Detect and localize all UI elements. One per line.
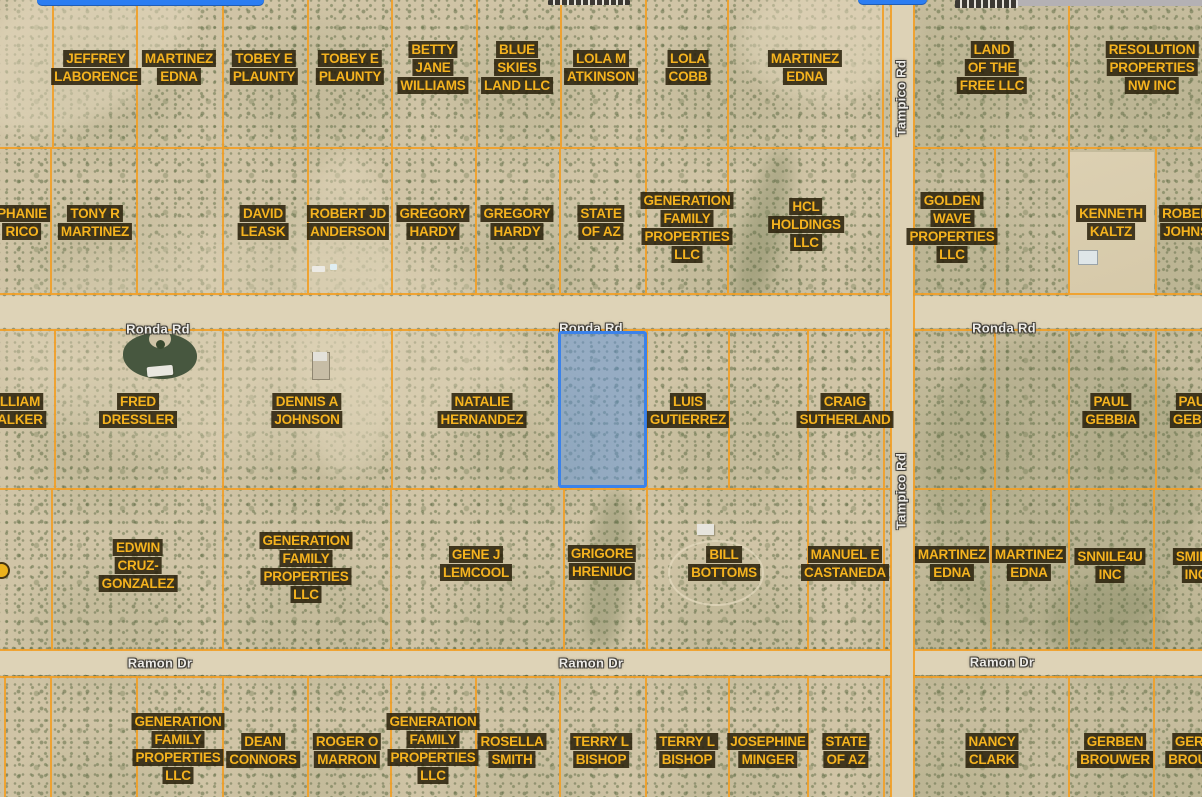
parcel-boundary-line xyxy=(0,649,890,651)
parcel-boundary-line xyxy=(913,0,915,797)
parcel-label-generation-family-properties-llc-d[interactable]: GENERATIONFAMILYPROPERTIESLLC xyxy=(259,531,352,603)
parcel-boundary-line xyxy=(391,0,393,147)
parcel-label-line: JEFFREY xyxy=(63,50,128,67)
parcel-label-line: EDWIN xyxy=(113,539,163,556)
parcel-label-line: JANE xyxy=(412,59,453,76)
parcel-label-line: KALTZ xyxy=(1087,223,1135,240)
parcel-label-robert-jd-anderson[interactable]: ROBERT JDANDERSON xyxy=(307,204,389,240)
parcel-label-line: FRED xyxy=(117,393,159,410)
parcel-label-william-walker-fragment[interactable]: LLIAMALKER xyxy=(0,392,46,428)
parcel-label-line: DEAN xyxy=(241,733,284,750)
parcel-label-line: KENNETH xyxy=(1076,205,1146,222)
parcel-label-line: MARTINEZ xyxy=(142,50,216,67)
parcel-label-line: PROPERTIES xyxy=(641,228,732,245)
parcel-label-line: LAND xyxy=(971,41,1014,58)
parcel-label-dean-connors[interactable]: DEANCONNORS xyxy=(226,732,300,768)
parcel-boundary-line xyxy=(914,147,1202,149)
parcel-label-line: GEBBIA xyxy=(1082,411,1139,428)
parcel-label-line: TOBEY E xyxy=(232,50,295,67)
parcel-label-line: GENERATION xyxy=(131,713,224,730)
parcel-boundary-line xyxy=(914,293,1202,295)
road-label: Tampico Rd xyxy=(894,453,909,529)
parcel-label-paul-gebbia[interactable]: PAULGEBBIA xyxy=(1082,392,1139,428)
parcel-label-line: PROPERTIES xyxy=(1106,59,1197,76)
parcel-label-generation-family-properties-llc-e2[interactable]: GENERATIONFAMILYPROPERTIESLLC xyxy=(386,712,479,784)
parcel-label-line: JOSEPHINE xyxy=(727,733,808,750)
parcel-boundary-line xyxy=(1068,676,1070,797)
parcel-label-line: TONY R xyxy=(67,205,122,222)
parcel-label-rosella-smith[interactable]: ROSELLASMITH xyxy=(477,732,546,768)
parcel-label-gerben-brouwer-fragment[interactable]: GERBBROUW xyxy=(1165,732,1202,768)
parcel-boundary-line xyxy=(0,147,890,149)
parcel-boundary-line xyxy=(475,147,477,293)
parcel-boundary-line xyxy=(136,147,138,293)
parcel-boundary-line xyxy=(4,676,6,797)
parcel-label-line: LEASK xyxy=(238,223,289,240)
parcel-label-line: HCL xyxy=(789,198,822,215)
parcel-boundary-line xyxy=(883,676,885,797)
parcel-label-line: MINGER xyxy=(739,751,798,768)
vehicle-anderson-2 xyxy=(330,264,337,270)
parcel-boundary-line xyxy=(914,676,1202,678)
parcel-label-generation-family-properties-llc-b[interactable]: GENERATIONFAMILYPROPERTIESLLC xyxy=(640,191,733,263)
parcel-label-line: MANUEL E xyxy=(808,546,883,563)
parcel-label-smile-inc-fragment[interactable]: SMILEINC xyxy=(1173,547,1202,583)
parcel-boundary-line xyxy=(222,0,224,147)
parcel-label-line: NANCY xyxy=(965,733,1018,750)
road-label: Tampico Rd xyxy=(894,60,909,136)
parcel-boundary-line xyxy=(0,488,890,490)
parcel-boundary-line xyxy=(50,676,52,797)
parcel-label-line: RESOLUTION xyxy=(1106,41,1199,58)
clipped-road-label-1 xyxy=(548,0,630,5)
parcel-label-line: FREE LLC xyxy=(957,77,1027,94)
parcel-label-line: GUTIERREZ xyxy=(647,411,729,428)
parcel-label-line: INC xyxy=(1182,566,1202,583)
parcel-label-line: DAVID xyxy=(240,205,286,222)
parcel-label-line: PAU xyxy=(1176,393,1202,410)
parcel-label-line: TERRY L xyxy=(656,733,718,750)
parcel-label-line: BLUE xyxy=(496,41,538,58)
parcel-boundary-line xyxy=(307,0,309,147)
parcel-label-line: CONNORS xyxy=(226,751,300,768)
parcel-label-tony-r-martinez[interactable]: TONY RMARTINEZ xyxy=(58,204,132,240)
parcel-label-line: CRAIG xyxy=(821,393,870,410)
structure-roof-dennis-johnson xyxy=(313,352,327,361)
parcel-label-terry-l-bishop-1[interactable]: TERRY LBISHOP xyxy=(570,732,632,768)
road-label: Ronda Rd xyxy=(972,321,1036,336)
parcel-label-line: PROPERTIES xyxy=(387,749,478,766)
parcel-boundary-line xyxy=(994,329,996,488)
parcel-label-golden-wave-properties-llc[interactable]: GOLDENWAVEPROPERTIESLLC xyxy=(906,191,997,263)
parcel-label-line: FAMILY xyxy=(406,731,459,748)
parcel-label-line: SKIES xyxy=(494,59,540,76)
parcel-label-dennis-a-johnson[interactable]: DENNIS AJOHNSON xyxy=(271,392,342,428)
parcel-label-line: BILL xyxy=(706,546,741,563)
parcel-label-line: GENERATION xyxy=(259,532,352,549)
vehicle-anderson-1 xyxy=(312,266,325,272)
parcel-label-line: RICO xyxy=(3,223,42,240)
parcel-label-line: PROPERTIES xyxy=(906,228,997,245)
parcel-label-line: JOHNSON xyxy=(271,411,342,428)
parcel-label-line: PLAUNTY xyxy=(230,68,298,85)
parcel-label-line: ALKER xyxy=(0,411,46,428)
parcel-label-hcl-holdings-llc[interactable]: HCLHOLDINGSLLC xyxy=(768,197,844,251)
parcel-label-line: OF AZ xyxy=(824,751,869,768)
parcel-boundary-line xyxy=(0,293,890,295)
parcel-label-paul-gebbia-fragment[interactable]: PAUGEBB xyxy=(1170,392,1202,428)
structure-kaltz xyxy=(1078,250,1098,265)
parcel-label-line: GENERATION xyxy=(386,713,479,730)
parcel-label-line: GRIGORE xyxy=(568,545,636,562)
parcel-label-line: NW INC xyxy=(1125,77,1179,94)
parcel-label-line: LEMCOOL xyxy=(440,564,512,581)
pond-islet xyxy=(156,340,165,349)
parcel-label-line: GREGORY xyxy=(396,205,469,222)
blue-bar-left xyxy=(37,0,264,6)
parcel-label-martinez-edna-d2[interactable]: MARTINEZEDNA xyxy=(992,545,1066,581)
parcel-boundary-line xyxy=(390,488,392,649)
parcel-label-terry-l-bishop-2[interactable]: TERRY LBISHOP xyxy=(656,732,718,768)
parcel-label-line: PROPERTIES xyxy=(132,749,223,766)
parcel-label-line: CLARK xyxy=(966,751,1018,768)
parcel-label-line: FAMILY xyxy=(279,550,332,567)
parcel-label-gerben-brouwer[interactable]: GERBENBROUWER xyxy=(1077,732,1153,768)
parcel-label-line: GEBB xyxy=(1170,411,1202,428)
parcel-label-line: OF AZ xyxy=(579,223,624,240)
parcel-boundary-line xyxy=(54,329,56,488)
parcel-label-natalie-hernandez[interactable]: NATALIEHERNANDEZ xyxy=(438,392,527,428)
parcel-boundary-line xyxy=(391,147,393,293)
parcel-label-line: LLC xyxy=(936,246,968,263)
parcel-label-line: BROUWER xyxy=(1077,751,1153,768)
parcel-label-line: STATE xyxy=(577,205,624,222)
parcel-label-martinez-edna-a1[interactable]: MARTINEZEDNA xyxy=(142,49,216,85)
parcel-label-line: MARTINEZ xyxy=(768,50,842,67)
parcel-boundary-line xyxy=(1153,676,1155,797)
parcel-label-gene-j-lemcool[interactable]: GENE JLEMCOOL xyxy=(440,545,512,581)
parcel-label-line: PROPERTIES xyxy=(260,568,351,585)
selected-parcel-highlight[interactable] xyxy=(558,331,647,488)
parcel-label-line: MARTINEZ xyxy=(915,546,989,563)
parcel-boundary-line xyxy=(563,488,565,649)
parcel-label-line: HERNANDEZ xyxy=(438,411,527,428)
parcel-label-line: WILLIAMS xyxy=(397,77,468,94)
parcel-label-line: GENE J xyxy=(449,546,503,563)
parcel-boundary-line xyxy=(727,0,729,147)
parcel-label-line: LOLA xyxy=(667,50,709,67)
parcel-label-line: NATALIE xyxy=(451,393,512,410)
parcel-label-line: CASTANEDA xyxy=(801,564,889,581)
parcel-label-line: LLC xyxy=(417,767,449,784)
parcel-label-manuel-e-castaneda[interactable]: MANUEL ECASTANEDA xyxy=(801,545,889,581)
gray-strip-top-right xyxy=(1008,0,1202,6)
parcel-label-line: INC xyxy=(1096,566,1125,583)
parcel-label-line: TERRY L xyxy=(570,733,632,750)
parcel-label-robert-johnson-fragment[interactable]: ROBERJOHNS xyxy=(1159,204,1202,240)
parcel-label-line: LLC xyxy=(790,234,822,251)
parcel-label-line: SNNILE4U xyxy=(1074,548,1145,565)
parcel-label-line: GONZALEZ xyxy=(99,575,178,592)
parcel-label-land-of-the-free-llc[interactable]: LANDOF THEFREE LLC xyxy=(957,40,1027,94)
parcel-boundary-line xyxy=(646,488,648,649)
parcel-label-luis-gutierrez[interactable]: LUISGUTIERREZ xyxy=(647,392,729,428)
parcel-label-blue-skies-land-llc[interactable]: BLUESKIESLAND LLC xyxy=(481,40,553,94)
parcel-label-line: MARRON xyxy=(314,751,380,768)
parcel-label-line: GREGORY xyxy=(480,205,553,222)
parcel-boundary-line xyxy=(50,147,52,293)
parcel-label-fred-dressler[interactable]: FREDDRESSLER xyxy=(99,392,177,428)
parcel-label-line: JOHNS xyxy=(1160,223,1202,240)
parcel-map-viewport[interactable]: Ronda RdRonda RdRonda RdRamon DrRamon Dr… xyxy=(0,0,1202,797)
parcel-boundary-line xyxy=(645,676,647,797)
parcel-label-gregory-hardy-1[interactable]: GREGORYHARDY xyxy=(396,204,469,240)
parcel-label-generation-family-properties-llc-e1[interactable]: GENERATIONFAMILYPROPERTIESLLC xyxy=(131,712,224,784)
parcel-boundary-line xyxy=(1068,488,1070,649)
parcel-label-line: LABORENCE xyxy=(51,68,141,85)
parcel-label-state-of-az-b[interactable]: STATEOF AZ xyxy=(577,204,624,240)
parcel-label-martinez-edna-d1[interactable]: MARTINEZEDNA xyxy=(915,545,989,581)
parcel-boundary-line xyxy=(1153,488,1155,649)
parcel-label-roger-o-marron[interactable]: ROGER OMARRON xyxy=(313,732,381,768)
parcel-boundary-line xyxy=(1068,0,1070,147)
parcel-label-craig-sutherland[interactable]: CRAIGSUTHERLAND xyxy=(797,392,894,428)
parcel-label-line: ROSELLA xyxy=(477,733,546,750)
parcel-label-line: ANDERSON xyxy=(307,223,389,240)
parcel-label-edwin-cruz-gonzalez[interactable]: EDWINCRUZ-GONZALEZ xyxy=(99,538,178,592)
parcel-label-martinez-edna-a2[interactable]: MARTINEZEDNA xyxy=(768,49,842,85)
parcel-label-line: LAND LLC xyxy=(481,77,553,94)
parcel-label-line: HRENIUC xyxy=(569,563,635,580)
parcel-label-line: SMITH xyxy=(488,751,535,768)
parcel-label-line: LLC xyxy=(290,586,322,603)
parcel-label-line: GENERATION xyxy=(640,192,733,209)
parcel-label-resolution-properties-nw-inc[interactable]: RESOLUTIONPROPERTIESNW INC xyxy=(1106,40,1199,94)
parcel-boundary-line xyxy=(1155,147,1157,293)
parcel-boundary-line xyxy=(914,329,1202,331)
parcel-label-line: BROUW xyxy=(1165,751,1202,768)
parcel-label-line: MARTINEZ xyxy=(992,546,1066,563)
parcel-label-bill-bottoms[interactable]: BILLBOTTOMS xyxy=(688,545,760,581)
parcel-label-line: SUTHERLAND xyxy=(797,411,894,428)
parcel-label-jeffrey-laborence[interactable]: JEFFREYLABORENCE xyxy=(51,49,141,85)
parcel-boundary-line xyxy=(645,0,647,147)
parcel-boundary-line xyxy=(560,0,562,147)
parcel-label-line: LLC xyxy=(162,767,194,784)
parcel-label-line: ROBER xyxy=(1159,205,1202,222)
parcel-label-grigore-hreniuc[interactable]: GRIGOREHRENIUC xyxy=(568,544,636,580)
parcel-label-line: EDNA xyxy=(157,68,200,85)
parcel-boundary-line xyxy=(559,676,561,797)
parcel-boundary-line xyxy=(0,676,890,678)
parcel-label-gregory-hardy-2[interactable]: GREGORYHARDY xyxy=(480,204,553,240)
parcel-label-line: LOLA M xyxy=(573,50,629,67)
parcel-label-line: ATKINSON xyxy=(564,68,638,85)
parcel-boundary-line xyxy=(883,147,885,293)
parcel-label-david-leask[interactable]: DAVIDLEASK xyxy=(238,204,289,240)
parcel-label-line: ROGER O xyxy=(313,733,381,750)
parcel-label-tobey-e-plaunty-2[interactable]: TOBEY EPLAUNTY xyxy=(316,49,384,85)
parcel-label-nancy-clark[interactable]: NANCYCLARK xyxy=(965,732,1018,768)
parcel-label-snnile4u-inc[interactable]: SNNILE4UINC xyxy=(1074,547,1145,583)
parcel-label-line: ROBERT JD xyxy=(307,205,389,222)
parcel-label-line: GERB xyxy=(1172,733,1202,750)
parcel-boundary-line xyxy=(222,488,224,649)
parcel-label-lola-m-atkinson[interactable]: LOLA MATKINSON xyxy=(564,49,638,85)
parcel-label-line: COBB xyxy=(666,68,711,85)
blue-bar-mid xyxy=(858,0,927,5)
parcel-label-line: EDNA xyxy=(930,564,973,581)
parcel-label-line: LLIAM xyxy=(0,393,43,410)
parcel-label-josephine-minger[interactable]: JOSEPHINEMINGER xyxy=(727,732,808,768)
parcel-label-line: BETTY xyxy=(408,41,457,58)
parcel-boundary-line xyxy=(914,649,1202,651)
clipped-road-label-2 xyxy=(955,0,1018,8)
parcel-label-tobey-e-plaunty-1[interactable]: TOBEY EPLAUNTY xyxy=(230,49,298,85)
parcel-label-line: BOTTOMS xyxy=(688,564,760,581)
parcel-label-line: PAUL xyxy=(1091,393,1132,410)
parcel-label-line: LLC xyxy=(671,246,703,263)
parcel-label-line: EDNA xyxy=(783,68,826,85)
parcel-label-line: PLAUNTY xyxy=(316,68,384,85)
parcel-label-line: BISHOP xyxy=(659,751,716,768)
parcel-label-line: HARDY xyxy=(490,223,543,240)
parcel-label-line: STATE xyxy=(822,733,869,750)
parcel-boundary-line xyxy=(222,147,224,293)
parcel-label-stephanie-rico-fragment[interactable]: PHANIERICO xyxy=(0,204,50,240)
parcel-label-line: OF THE xyxy=(965,59,1019,76)
structure-bottoms xyxy=(697,524,714,535)
parcel-boundary-line xyxy=(51,488,53,649)
road-label: Ramon Dr xyxy=(128,656,193,671)
parcel-label-line: SMILE xyxy=(1173,548,1202,565)
road-label: Ronda Rd xyxy=(126,322,190,337)
parcel-label-line: DENNIS A xyxy=(273,393,341,410)
parcel-label-lola-cobb[interactable]: LOLACOBB xyxy=(666,49,711,85)
parcel-label-line: BISHOP xyxy=(573,751,630,768)
parcel-boundary-line xyxy=(476,0,478,147)
parcel-boundary-line xyxy=(559,147,561,293)
parcel-label-state-of-az-e[interactable]: STATEOF AZ xyxy=(822,732,869,768)
parcel-boundary-line xyxy=(882,0,884,147)
road-label: Ramon Dr xyxy=(970,655,1035,670)
parcel-boundary-line xyxy=(307,676,309,797)
parcel-label-line: HOLDINGS xyxy=(768,216,844,233)
parcel-label-kenneth-kaltz[interactable]: KENNETHKALTZ xyxy=(1076,204,1146,240)
parcel-boundary-line xyxy=(1155,329,1157,488)
parcel-label-line: FAMILY xyxy=(660,210,713,227)
road-label: Ramon Dr xyxy=(559,656,624,671)
parcel-label-line: PHANIE xyxy=(0,205,50,222)
parcel-boundary-line xyxy=(391,329,393,488)
parcel-label-line: MARTINEZ xyxy=(58,223,132,240)
parcel-label-line: GOLDEN xyxy=(921,192,984,209)
parcel-boundary-line xyxy=(914,488,1202,490)
parcel-boundary-line xyxy=(1068,147,1070,293)
parcel-boundary-line xyxy=(1068,329,1070,488)
parcel-label-betty-jane-williams[interactable]: BETTYJANEWILLIAMS xyxy=(397,40,468,94)
parcel-label-line: TOBEY E xyxy=(318,50,381,67)
parcel-label-line: WAVE xyxy=(930,210,974,227)
parcel-label-line: GERBEN xyxy=(1084,733,1147,750)
parcel-boundary-line xyxy=(222,329,224,488)
parcel-label-line: FAMILY xyxy=(151,731,204,748)
parcel-label-line: EDNA xyxy=(1007,564,1050,581)
parcel-label-line: DRESSLER xyxy=(99,411,177,428)
parcel-label-line: LUIS xyxy=(670,393,706,410)
parcel-label-line: CRUZ- xyxy=(115,557,162,574)
parcel-label-line: HARDY xyxy=(406,223,459,240)
